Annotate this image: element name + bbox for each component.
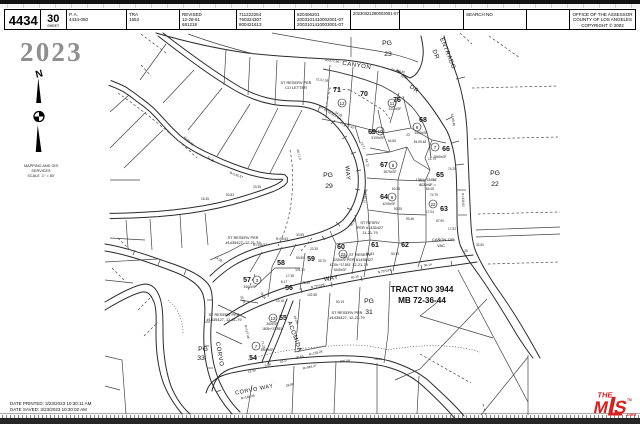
svg-text:5110±SF: 5110±SF — [389, 107, 402, 111]
svg-text:17.38: 17.38 — [286, 274, 294, 278]
svg-text:67: 67 — [380, 162, 388, 169]
svg-text:33: 33 — [197, 355, 205, 362]
svg-text:R=983.27: R=983.27 — [303, 364, 318, 371]
svg-text:64: 64 — [380, 194, 388, 201]
svg-text:PG: PG — [490, 170, 500, 177]
svg-text:PG: PG — [364, 298, 374, 305]
svg-text:23.71: 23.71 — [359, 141, 366, 150]
svg-text:71: 71 — [333, 87, 341, 94]
svg-text:102.58: 102.58 — [307, 293, 317, 297]
svg-text:VAC: VAC — [437, 243, 445, 248]
svg-text:84.08: 84.08 — [426, 187, 434, 191]
svg-text:16.33: 16.33 — [366, 252, 374, 256]
svg-text:63: 63 — [440, 206, 448, 213]
svg-text:7: 7 — [255, 344, 258, 349]
svg-text:33.55: 33.55 — [296, 233, 304, 237]
svg-text:50.19: 50.19 — [351, 274, 360, 279]
svg-text:1780± *37.853: 1780± *37.853 — [416, 178, 437, 182]
svg-text:59: 59 — [307, 256, 315, 263]
svg-text:ENTRADO: ENTRADO — [438, 37, 456, 70]
svg-text:38.04: 38.04 — [349, 218, 356, 227]
svg-text:PG: PG — [382, 40, 392, 47]
svg-text:3675±SF: 3675±SF — [384, 170, 397, 174]
svg-text:50.19: 50.19 — [336, 300, 344, 304]
svg-text:50.83: 50.83 — [226, 193, 234, 197]
svg-text:23.35: 23.35 — [310, 247, 318, 251]
svg-text:54.09.48: 54.09.48 — [450, 113, 456, 126]
svg-text:DR: DR — [431, 49, 440, 60]
svg-text:12-21-79: 12-21-79 — [352, 262, 368, 267]
svg-text:16.35: 16.35 — [201, 197, 209, 201]
svg-text:19.53: 19.53 — [341, 255, 349, 259]
svg-text:8: 8 — [392, 163, 395, 168]
svg-text:22: 22 — [430, 202, 436, 207]
svg-text:70.85: 70.85 — [400, 74, 409, 80]
svg-text:1845±SF: 1845±SF — [334, 268, 347, 272]
svg-text:36.19: 36.19 — [424, 262, 433, 267]
svg-text:R=95.63: R=95.63 — [276, 237, 288, 241]
svg-text:30.85: 30.85 — [239, 295, 246, 304]
svg-text:WAY: WAY — [324, 275, 340, 283]
svg-text:22: 22 — [491, 181, 499, 188]
svg-text:55: 55 — [279, 315, 287, 322]
svg-text:23.35: 23.35 — [253, 185, 261, 189]
svg-text:69: 69 — [368, 129, 376, 136]
svg-text:60.71.0: 60.71.0 — [296, 149, 303, 161]
svg-text:57.97: 57.97 — [346, 122, 355, 130]
svg-text:R=439.82: R=439.82 — [391, 68, 406, 75]
svg-text:50.19: 50.19 — [391, 252, 399, 256]
svg-text:43.17: 43.17 — [279, 358, 288, 364]
svg-text:12: 12 — [339, 101, 345, 106]
svg-text:57: 57 — [243, 277, 251, 284]
svg-text:8.17: 8.17 — [281, 280, 287, 284]
svg-text:TRACT NO 3944: TRACT NO 3944 — [391, 285, 454, 294]
svg-text:68: 68 — [419, 117, 427, 124]
svg-text:5190±SF: 5190±SF — [372, 136, 385, 140]
svg-text:CANYON: CANYON — [342, 61, 372, 72]
svg-text:R=436.27: R=436.27 — [362, 189, 368, 204]
svg-text:14.39: 14.39 — [214, 255, 223, 263]
svg-text:25: 25 — [464, 249, 468, 253]
svg-text:33.70: 33.70 — [318, 259, 326, 263]
svg-text:#1435427, 12-21-79: #1435427, 12-21-79 — [206, 317, 241, 322]
svg-text:DR: DR — [408, 84, 420, 95]
svg-text:17.9: 17.9 — [339, 121, 346, 128]
svg-text:N: N — [34, 68, 44, 80]
svg-text:PG: PG — [323, 172, 333, 179]
svg-text:101.70: 101.70 — [295, 268, 305, 272]
svg-text:10: 10 — [377, 129, 383, 134]
svg-text:66: 66 — [442, 146, 450, 153]
svg-text:17.04: 17.04 — [426, 210, 434, 214]
svg-text:5220±SF: 5220±SF — [420, 183, 433, 187]
svg-text:R=277.96: R=277.96 — [325, 58, 340, 64]
svg-text:MB 72-36-44: MB 72-36-44 — [398, 296, 446, 305]
svg-text:DATE PRINTED: 3/23/2023 10:30: DATE PRINTED: 3/23/2023 10:30:11 AM — [10, 401, 92, 406]
svg-text:62: 62 — [401, 242, 409, 249]
svg-text:7: 7 — [434, 145, 437, 150]
svg-text:360±SF: 360±SF — [266, 322, 277, 326]
svg-text:76.59: 76.59 — [302, 281, 310, 285]
svg-text:.com: .com — [626, 412, 637, 417]
svg-text:4205±SF: 4205±SF — [383, 202, 396, 206]
svg-text:6: 6 — [391, 195, 394, 200]
svg-text:54.69.48: 54.69.48 — [414, 140, 427, 144]
svg-text:17.52: 17.52 — [448, 227, 456, 231]
svg-text:60.25: 60.25 — [392, 187, 400, 191]
svg-text:93.46: 93.46 — [406, 217, 414, 221]
svg-text:34.29: 34.29 — [206, 155, 215, 163]
svg-text:61: 61 — [371, 242, 379, 249]
svg-text:32.50: 32.50 — [476, 243, 484, 247]
svg-text:13: 13 — [270, 316, 276, 321]
svg-text:64.72: 64.72 — [364, 159, 369, 168]
svg-text:54: 54 — [249, 355, 257, 362]
svg-text:74.25: 74.25 — [448, 167, 456, 171]
svg-text:N 79°53'E: N 79°53'E — [377, 268, 392, 274]
svg-text:50.85: 50.85 — [296, 256, 304, 260]
svg-text:ACOMIDA: ACOMIDA — [286, 321, 303, 353]
svg-text:74.79: 74.79 — [430, 193, 438, 197]
svg-text:#1435427, 12-21-79: #1435427, 12-21-79 — [329, 315, 364, 320]
svg-text:56: 56 — [285, 285, 293, 292]
svg-text:10.18: 10.18 — [276, 299, 284, 303]
svg-text:70: 70 — [360, 91, 368, 98]
svg-text:R=145.57: R=145.57 — [253, 243, 267, 247]
svg-text:31: 31 — [365, 309, 373, 316]
svg-text:CAÑON DR: CAÑON DR — [432, 237, 454, 242]
svg-text:2560±SF: 2560±SF — [434, 155, 447, 159]
svg-text:DATE SAVED: 3/23/2023 10:30:0: DATE SAVED: 3/23/2023 10:30:02 AM — [10, 407, 87, 412]
svg-text:10.65: 10.65 — [374, 357, 382, 362]
svg-text:23: 23 — [406, 133, 410, 137]
svg-text:64.65: 64.65 — [388, 139, 396, 143]
svg-text:11-21-79: 11-21-79 — [362, 230, 377, 235]
svg-text:CO LETTER: CO LETTER — [285, 85, 307, 90]
svg-text:50.25: 50.25 — [394, 207, 402, 211]
svg-text:12.39: 12.39 — [247, 368, 256, 374]
svg-text:WAY: WAY — [343, 166, 350, 181]
svg-text:29: 29 — [325, 183, 333, 190]
svg-text:23: 23 — [384, 51, 392, 58]
svg-text:1805±*37.853: 1805±*37.853 — [262, 327, 282, 331]
svg-text:970.04: 970.04 — [340, 358, 350, 363]
svg-text:CORVO: CORVO — [214, 342, 224, 368]
svg-text:21.51.38: 21.51.38 — [316, 77, 329, 83]
svg-text:11: 11 — [390, 101, 395, 106]
svg-text:87.90: 87.90 — [436, 219, 444, 223]
svg-text:PG: PG — [198, 346, 208, 353]
svg-text:TM: TM — [627, 398, 632, 402]
svg-text:3: 3 — [256, 278, 259, 283]
svg-text:3450±SF: 3450±SF — [415, 131, 428, 135]
svg-text:65: 65 — [436, 172, 444, 179]
svg-text:58: 58 — [277, 260, 285, 267]
svg-text:4235± *37.853: 4235± *37.853 — [330, 263, 351, 267]
svg-text:78.04: 78.04 — [259, 291, 267, 300]
svg-text:R=127.48: R=127.48 — [244, 325, 251, 340]
svg-text:20.65: 20.65 — [295, 354, 304, 360]
svg-text:9: 9 — [416, 125, 419, 130]
svg-text:R=155.26: R=155.26 — [309, 349, 324, 356]
svg-text:3460±SF: 3460±SF — [244, 285, 257, 289]
svg-text:R=439.82: R=439.82 — [461, 193, 465, 207]
